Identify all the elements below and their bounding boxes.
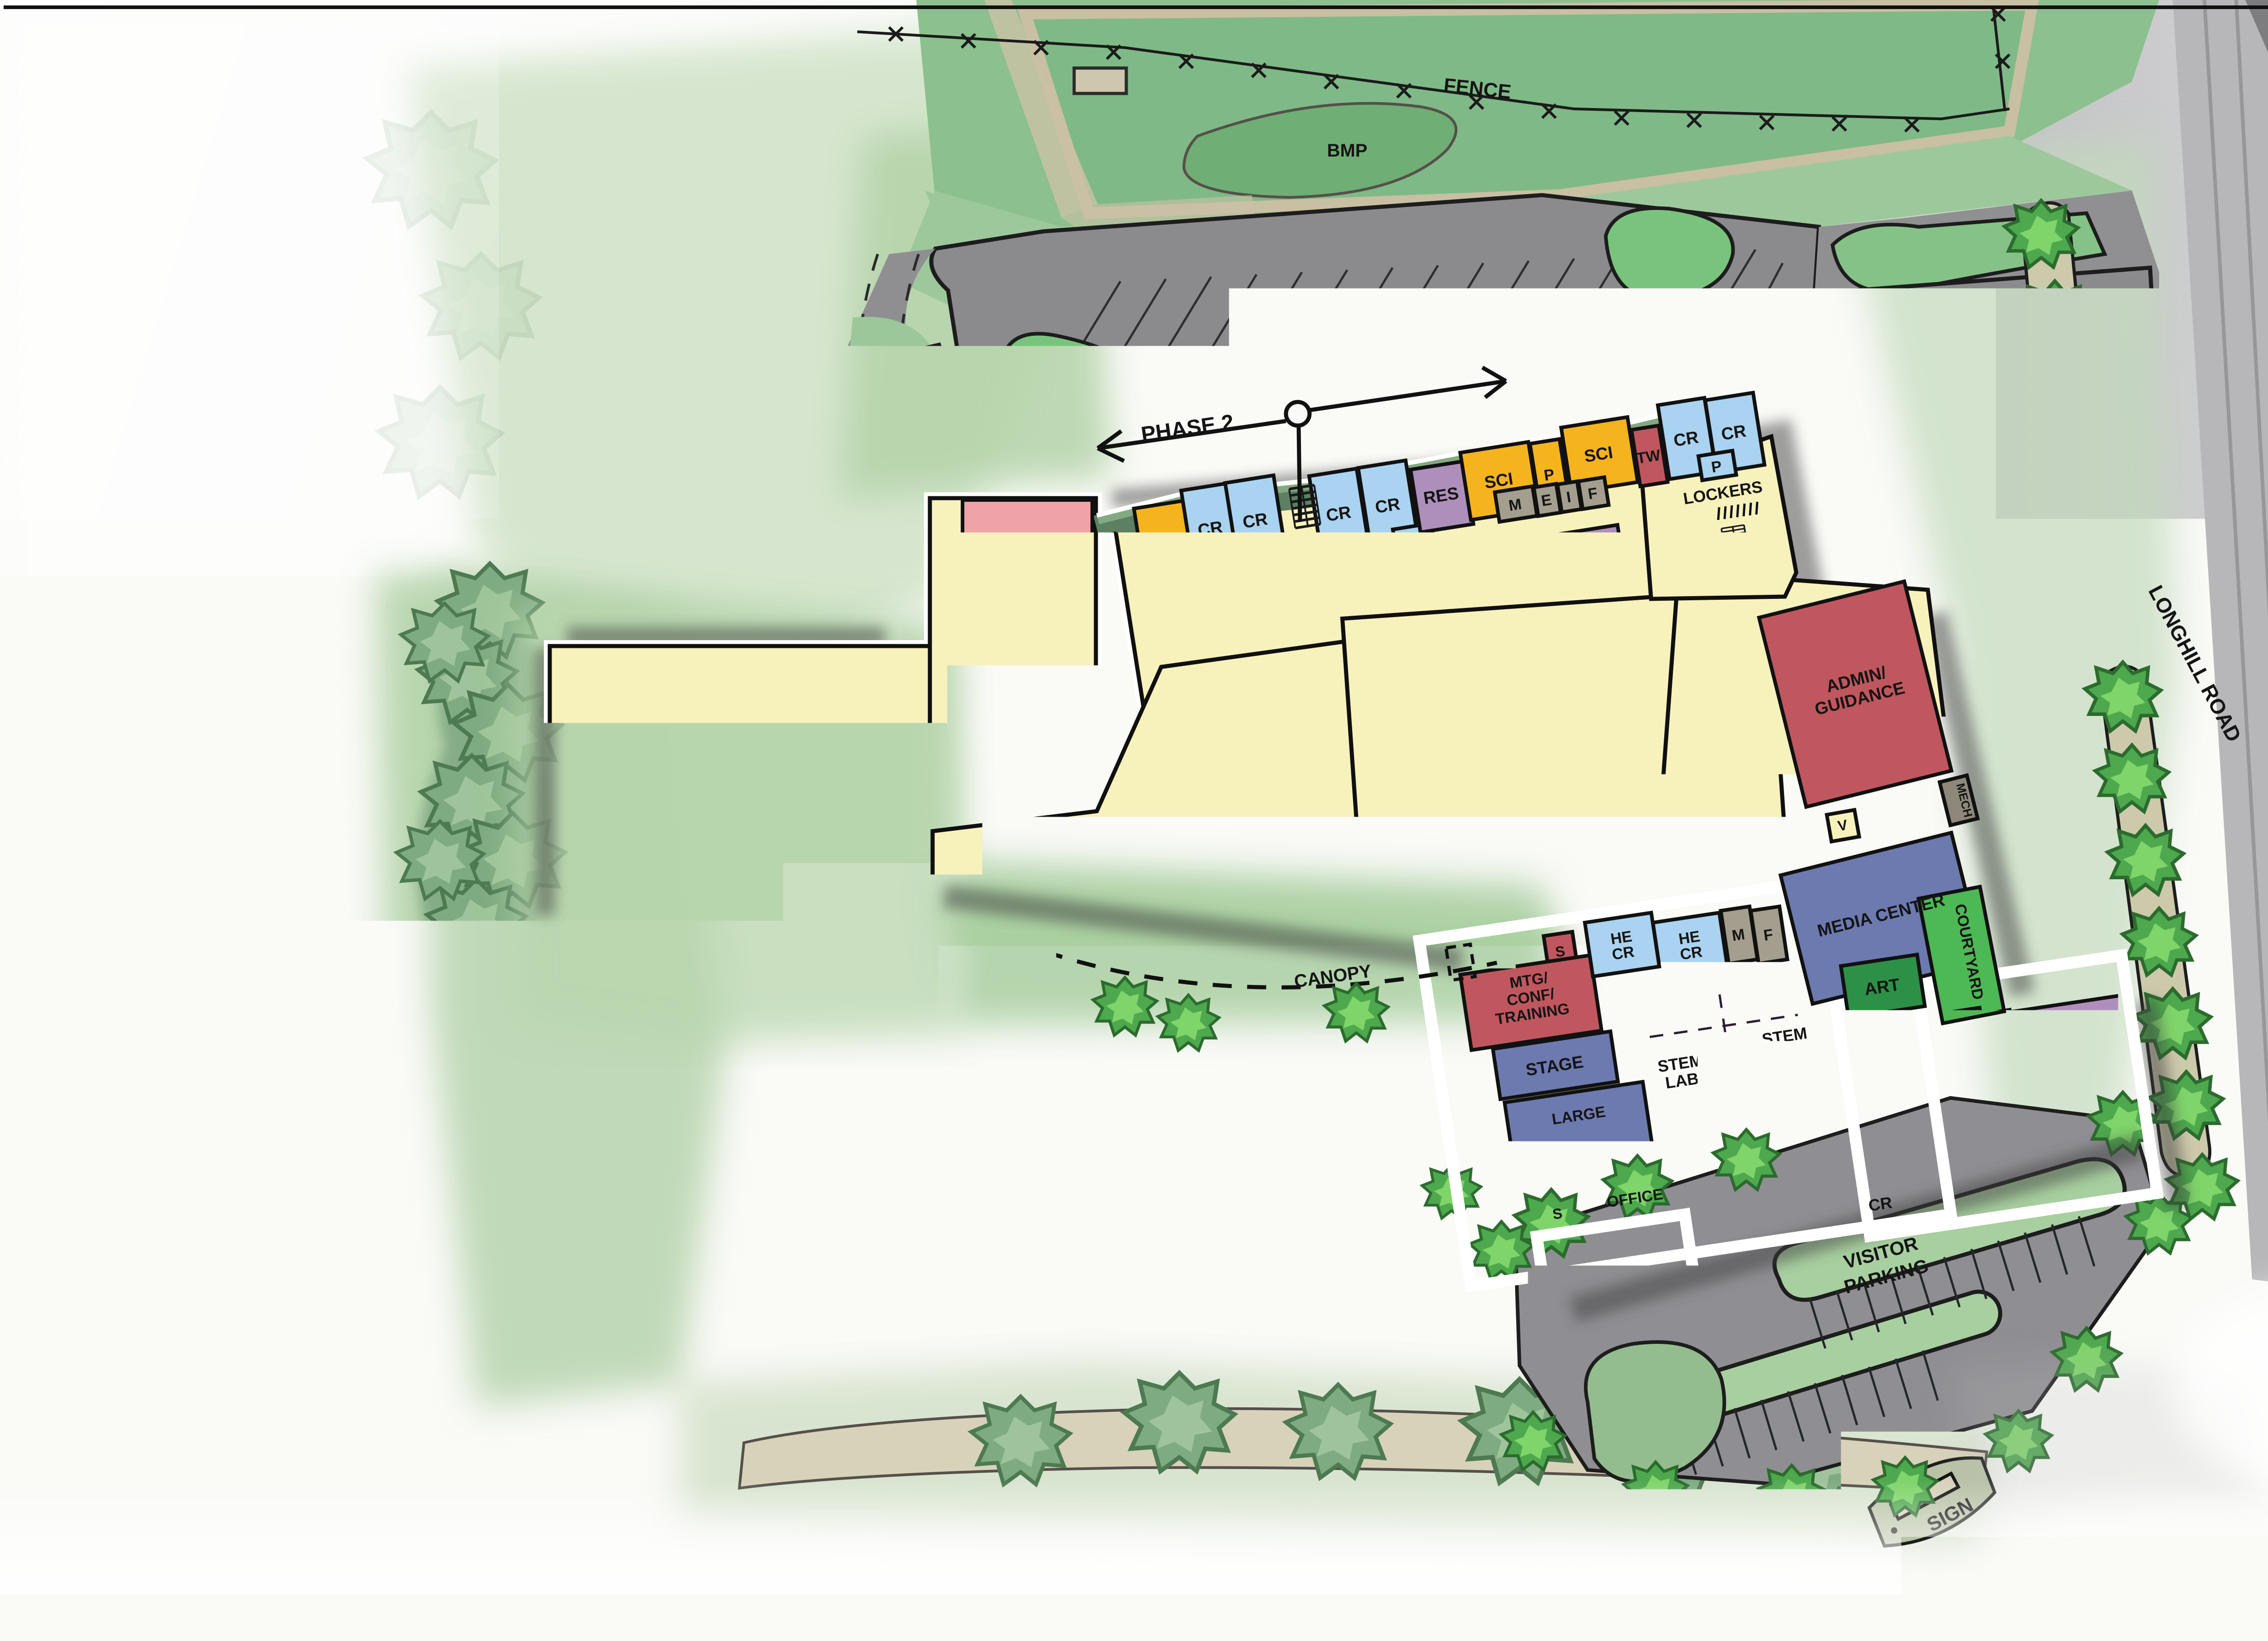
svg-text:M: M — [1841, 1132, 1856, 1151]
svg-text:BUILDING SERVICES /: BUILDING SERVICES / — [166, 354, 378, 377]
svg-text:GYM: GYM — [1243, 816, 1283, 835]
svg-text:AUX: AUX — [1243, 797, 1280, 816]
svg-text:CR: CR — [1325, 503, 1353, 525]
svg-text:BMP: BMP — [1327, 141, 1368, 161]
svg-text:CR: CR — [1442, 878, 1469, 899]
svg-text:FINE ARTS:: FINE ARTS: — [166, 549, 274, 571]
svg-text:STAGE: STAGE — [639, 729, 697, 748]
svg-text:OFFICE/: OFFICE/ — [651, 880, 705, 895]
svg-text:ARCHITECTS: ARCHITECTS — [2251, 1604, 2268, 1618]
svg-text:CR: CR — [1672, 428, 1700, 451]
svg-text:S: S — [814, 895, 825, 914]
svg-text:ATHLETICS: ATHLETICS — [166, 522, 274, 544]
svg-text:STOR: STOR — [660, 910, 697, 925]
svg-text:CR: CR — [1275, 662, 1303, 685]
svg-text:ADMINISTRATION: ADMINISTRATION — [166, 315, 335, 337]
svg-text:Williamsburg James City County: Williamsburg James City County — [93, 1529, 616, 1567]
svg-text:S: S — [1462, 730, 1474, 748]
svg-text:COMMONS: COMMONS — [982, 734, 1074, 753]
svg-text:PRAC/: PRAC/ — [657, 895, 699, 910]
svg-text:CR: CR — [1513, 566, 1540, 588]
svg-text:AUD: AUD — [796, 729, 833, 748]
svg-text:BAND: BAND — [729, 895, 779, 914]
svg-text:M: M — [1507, 495, 1523, 514]
svg-text:M: M — [895, 609, 908, 626]
svg-text:PHYSICAL EDUCATION /: PHYSICAL EDUCATION / — [166, 500, 397, 522]
svg-text:ORCH: ORCH — [576, 895, 627, 914]
svg-text:CONCEPT-G (PHASE 2): CONCEPT-G (PHASE 2) — [93, 1411, 657, 1466]
svg-text:RRMM: RRMM — [2257, 1572, 2268, 1604]
svg-text:CIRCULATION: CIRCULATION — [166, 461, 300, 484]
svg-text:KIT: KIT — [2059, 1029, 2089, 1052]
svg-text:CR: CR — [1242, 509, 1269, 532]
svg-text:MEDIA CENTER: MEDIA CENTER — [166, 658, 316, 680]
svg-text:SCIENCE: SCIENCE — [166, 267, 255, 289]
svg-text:GYM: GYM — [1629, 845, 1672, 867]
svg-text:S: S — [1466, 799, 1478, 817]
svg-text:P/S: P/S — [1728, 1166, 1752, 1185]
svg-text:COMMONS: COMMONS — [166, 720, 273, 743]
svg-text:SHOP: SHOP — [561, 667, 610, 686]
svg-text:T: T — [898, 728, 906, 743]
svg-text:CR: CR — [1720, 421, 1748, 444]
svg-text:CR: CR — [1197, 518, 1224, 540]
svg-text:GENERAL CLASSROOMS: GENERAL CLASSROOMS — [166, 220, 407, 242]
svg-text:KITCHEN: KITCHEN — [989, 566, 1066, 585]
svg-text:ED: ED — [1467, 598, 1491, 619]
svg-text:0': 0' — [2213, 1435, 2228, 1457]
svg-text:DRESS: DRESS — [559, 813, 612, 830]
svg-text:CR: CR — [1867, 1193, 1893, 1215]
svg-text:CR: CR — [1611, 943, 1635, 964]
svg-text:AUDITORIUM / MUSIC / ART: AUDITORIUM / MUSIC / ART — [166, 570, 428, 593]
svg-text:MULTIPURPOSE /: MULTIPURPOSE / — [166, 699, 333, 721]
svg-text:EXPLORATORY:CAREER /: EXPLORATORY:CAREER / — [166, 402, 413, 424]
svg-text:CAFETERIA / KITCHEN: CAFETERIA / KITCHEN — [166, 605, 381, 627]
svg-text:OFFICE: OFFICE — [1077, 861, 1137, 879]
svg-text:V: V — [1035, 867, 1046, 886]
svg-text:M: M — [1657, 1266, 1671, 1282]
svg-text:LEGEND: LEGEND — [97, 173, 204, 201]
svg-text:RECEIVING: RECEIVING — [710, 514, 815, 536]
svg-text:IRONBOUND ROAD: IRONBOUND ROAD — [1159, 1542, 1364, 1566]
svg-text:DRESS: DRESS — [556, 777, 616, 796]
svg-text:CR: CR — [1336, 654, 1364, 676]
svg-text:MECH: MECH — [821, 593, 872, 612]
svg-text:M: M — [1731, 926, 1746, 945]
svg-text:TECHNICAL EDUCATION: TECHNICAL EDUCATION — [166, 424, 400, 446]
svg-text:EQ: EQ — [1663, 566, 1685, 583]
svg-text:OCT. 07, 2014: OCT. 07, 2014 — [2093, 1498, 2248, 1524]
svg-text:V: V — [946, 572, 956, 588]
svg-text:CHORUS: CHORUS — [846, 895, 921, 914]
svg-text:CR: CR — [1214, 669, 1242, 692]
svg-text:CR: CR — [1374, 495, 1402, 517]
svg-text:SECURITY: SECURITY — [932, 861, 1014, 879]
svg-text:CR: CR — [1397, 646, 1424, 668]
svg-text:RESTROOMS: RESTROOMS — [166, 376, 295, 398]
svg-text:PROPS: PROPS — [555, 726, 616, 745]
svg-text:M: M — [925, 609, 938, 626]
svg-text:CR: CR — [1679, 943, 1703, 964]
